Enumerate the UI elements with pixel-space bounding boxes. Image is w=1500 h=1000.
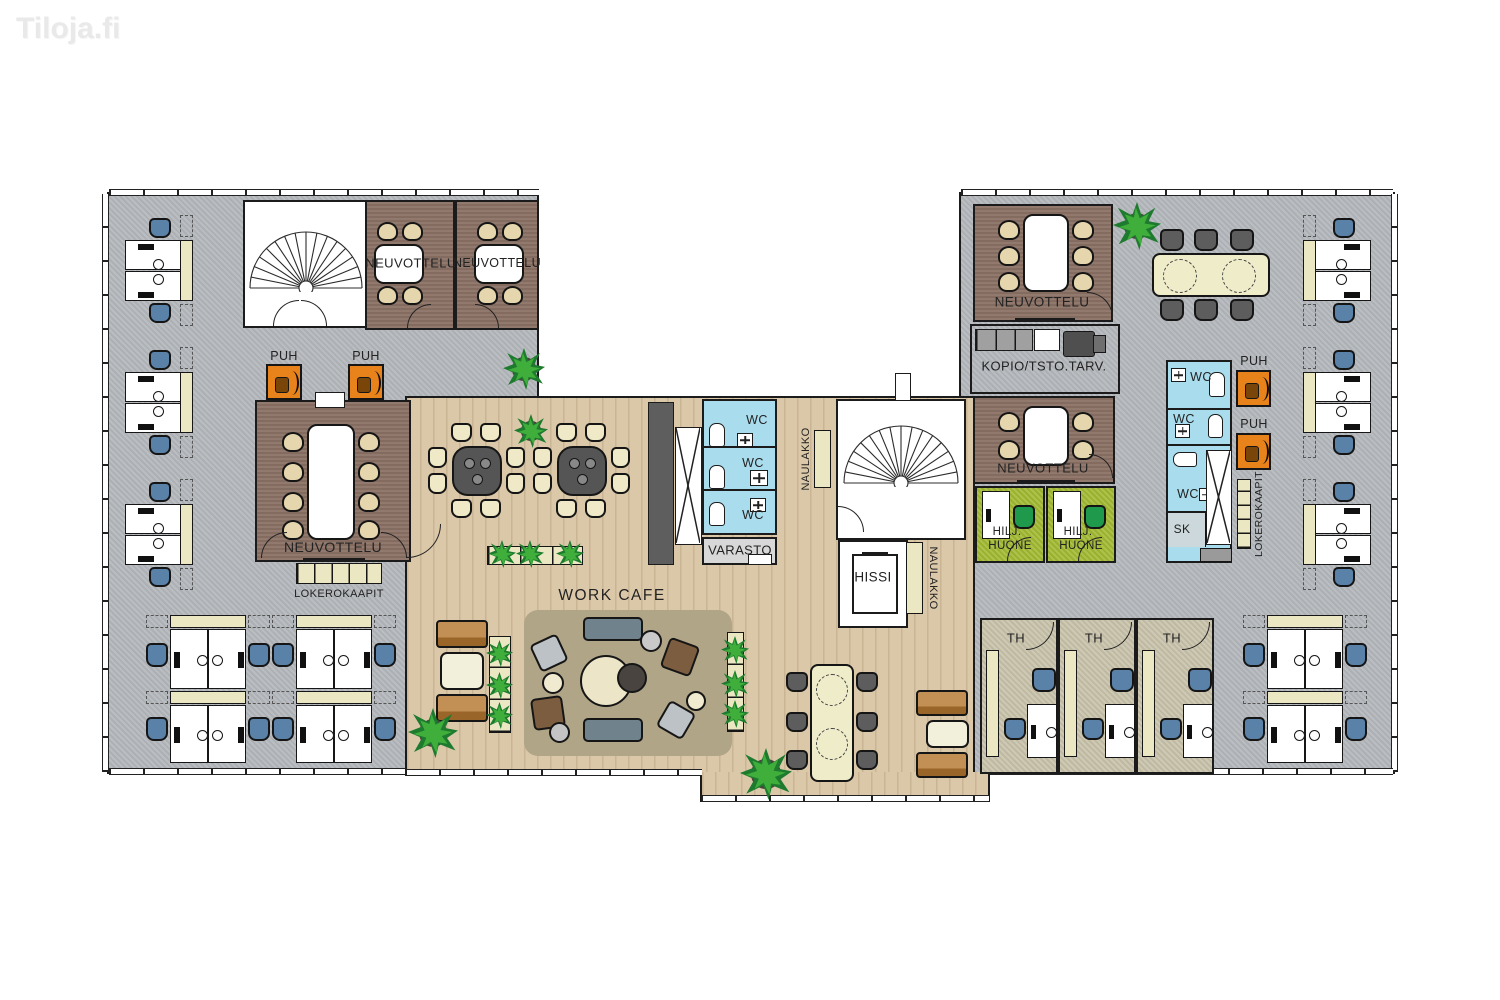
chair (533, 473, 552, 494)
monitor (300, 652, 306, 668)
chair (358, 432, 380, 452)
door-arc (1026, 622, 1054, 650)
ventilation-shaft (1206, 450, 1232, 545)
chair (1160, 299, 1184, 321)
monitor (238, 652, 244, 668)
reserved-slot (248, 691, 270, 704)
chair (402, 222, 423, 241)
copier (1063, 331, 1095, 357)
phone-booth (348, 364, 384, 400)
reserved-slot (1345, 615, 1367, 628)
chair (506, 473, 525, 494)
room-label-elevator: HISSI (854, 570, 891, 585)
desk-leg (197, 655, 208, 666)
desk-storage (170, 615, 246, 628)
desk (1267, 629, 1305, 689)
power-module (577, 474, 588, 485)
reserved-slot (146, 615, 168, 628)
side-table (549, 722, 570, 743)
booth-table (1255, 377, 1269, 401)
plant (556, 540, 584, 568)
monitor (1109, 725, 1114, 739)
chair (1333, 567, 1355, 587)
room-label-phone-booth: PUH (1240, 417, 1268, 431)
chair (358, 462, 380, 482)
chair (998, 440, 1020, 460)
chair (149, 303, 171, 323)
chair (374, 643, 396, 667)
monitor (1271, 727, 1277, 743)
cabinet (986, 650, 999, 757)
chair (402, 286, 423, 305)
chair (1160, 718, 1182, 740)
whiteboard (303, 558, 365, 561)
monitor (138, 292, 154, 298)
bench (1200, 548, 1232, 562)
chair (998, 272, 1020, 292)
elevator-door (862, 552, 888, 555)
chair (1004, 718, 1026, 740)
chair (1110, 668, 1134, 692)
monitor (138, 508, 154, 514)
desk (1027, 704, 1057, 758)
desk (296, 705, 334, 763)
shaft-x-mark (1207, 451, 1230, 543)
room-label-coat-rack: NAULAKKO (800, 427, 812, 490)
door-arc (1182, 622, 1210, 650)
desk-leg (1046, 727, 1057, 738)
chair (1082, 718, 1104, 740)
reserved-slot (1303, 479, 1316, 501)
booth-bench (436, 620, 488, 648)
monitor (174, 652, 180, 668)
power-module (585, 458, 596, 469)
desk (170, 705, 208, 763)
chair (1072, 272, 1094, 292)
reserved-slot (1303, 568, 1316, 590)
phone-booth (1236, 433, 1271, 470)
reserved-slot (180, 479, 193, 501)
door-arc (1104, 622, 1132, 650)
chair (1072, 246, 1094, 266)
desk-pair (1303, 482, 1385, 588)
side-table (686, 691, 706, 711)
chair (1333, 482, 1355, 502)
plant (721, 636, 749, 664)
room-label-meeting: NEUVOTTELU (997, 461, 1088, 476)
room-label-meeting: NEUVOTTELU (995, 295, 1090, 310)
desk-storage (1303, 240, 1316, 301)
room-label-th: TH (1163, 631, 1181, 646)
desk-storage (1303, 504, 1316, 565)
reserved-slot (180, 568, 193, 590)
reserved-slot (1303, 436, 1316, 458)
monitor (138, 244, 154, 250)
room-label-meeting: NEUVOTTELU (453, 256, 541, 270)
reserved-slot (180, 436, 193, 458)
floor-plan-canvas: Tiloja.fi NEUVOTTELU NEUVOTTELU (0, 0, 1500, 1000)
chair (506, 447, 525, 468)
chair (1194, 229, 1218, 251)
room-label-quiet: HILJ. (993, 526, 1022, 538)
chair (377, 222, 398, 241)
reserved-slot (248, 615, 270, 628)
desk-storage (180, 504, 193, 565)
room-label-lockers: LOKEROKAAPIT (1253, 471, 1265, 557)
door-arc (838, 506, 864, 532)
booth-table (1255, 440, 1269, 464)
door-arc (475, 304, 499, 328)
plant (486, 702, 513, 729)
room-label-storage: VARASTO (708, 543, 772, 558)
chair (502, 286, 523, 305)
monitor (1344, 292, 1360, 298)
reserved-slot (272, 691, 294, 704)
booth-bench (916, 752, 968, 778)
toilet (1173, 452, 1197, 467)
reserved-slot (1303, 215, 1316, 237)
chair (282, 432, 304, 452)
monitor (1335, 652, 1341, 668)
table-marking (816, 728, 848, 760)
reserved-slot (1243, 691, 1265, 704)
chair (1333, 218, 1355, 238)
desk-leg (1309, 655, 1320, 666)
desk-cluster (146, 615, 270, 763)
desk-leg (212, 730, 223, 741)
room-label-quiet: HILJ. (1064, 526, 1093, 538)
desk-leg (1202, 727, 1213, 738)
desk-leg (1336, 406, 1347, 417)
locker-cabinets (296, 563, 382, 584)
meeting-table (307, 424, 355, 540)
cabinet (1064, 650, 1077, 757)
room-label-wc: WC (742, 456, 764, 470)
booth-bench (916, 690, 968, 716)
desk-pair (125, 218, 207, 324)
reserved-slot (180, 347, 193, 369)
chair (1072, 412, 1094, 432)
power-module (569, 458, 580, 469)
reserved-slot (146, 691, 168, 704)
chair (477, 286, 498, 305)
desk-leg (1294, 730, 1305, 741)
partition-wall (1168, 444, 1230, 446)
wall-pass-box (315, 392, 345, 408)
cabinet (1034, 329, 1060, 351)
potted-plant (740, 748, 792, 800)
cafe-table (557, 446, 607, 496)
whiteboard (1017, 480, 1075, 483)
monitor (138, 376, 154, 382)
plant (721, 700, 749, 728)
desk-leg (212, 655, 223, 666)
desk-leg (153, 274, 164, 285)
partition-wall (704, 489, 775, 491)
side-table (640, 630, 662, 652)
room-label-phone-booth: PUH (1240, 354, 1268, 368)
chair (611, 447, 630, 468)
desk (1305, 705, 1343, 763)
door-arc (301, 300, 327, 326)
table-marking (1163, 259, 1197, 293)
monitor (300, 727, 306, 743)
door-arc (1089, 454, 1113, 478)
window-strip (109, 189, 539, 196)
desk-pair (125, 482, 207, 588)
desk (296, 629, 334, 689)
plant (486, 640, 513, 667)
room-label-wc: WC (742, 508, 764, 522)
potted-plant (514, 414, 548, 448)
cabinet-row (975, 329, 1033, 351)
coat-rack-cabinet (814, 430, 831, 488)
window-strip (961, 189, 1393, 196)
toilet (1208, 414, 1223, 438)
booth-table (440, 652, 484, 690)
monitor (364, 727, 370, 743)
chair (248, 717, 270, 741)
chair (282, 462, 304, 482)
room-label-coat-rack: NAULAKKO (927, 546, 939, 609)
door-arc (273, 300, 299, 326)
monitor (138, 424, 154, 430)
chair (998, 220, 1020, 240)
chair (146, 643, 168, 667)
chair (1188, 668, 1212, 692)
coat-rack-cabinet (906, 542, 923, 614)
booth-table (285, 371, 299, 395)
chair (428, 473, 447, 494)
chair (149, 435, 171, 455)
monitor (986, 509, 991, 522)
reserved-slot (1345, 691, 1367, 704)
wall-pass-box (895, 373, 911, 401)
chair (477, 222, 498, 241)
reserved-slot (272, 615, 294, 628)
room-label-wc: WC (1177, 487, 1199, 501)
desk-cluster (1243, 615, 1367, 763)
whiteboard (1015, 318, 1075, 321)
plant (516, 540, 544, 568)
monitor (364, 652, 370, 668)
coffee-table (617, 663, 647, 693)
desk (334, 629, 372, 689)
service-shaft (648, 402, 674, 565)
booth-table (367, 371, 381, 395)
chair (556, 423, 577, 442)
room-label-wc: WC (1173, 412, 1195, 426)
desk-leg (197, 730, 208, 741)
table-marking (816, 674, 848, 706)
desk-leg (338, 730, 349, 741)
sofa (583, 617, 643, 641)
room-label-quiet: HUONE (1059, 540, 1103, 552)
door-arc (1087, 292, 1113, 318)
monitor (1344, 244, 1360, 250)
monitor (238, 727, 244, 743)
chair (1032, 668, 1056, 692)
desk-pair (1303, 350, 1385, 456)
reserved-slot (1303, 304, 1316, 326)
chair (585, 423, 606, 442)
desk-leg (1294, 655, 1305, 666)
desk-leg (153, 259, 164, 270)
room-label-copy: KOPIO/TSTO.TARV. (981, 359, 1106, 374)
desk-leg (1336, 523, 1347, 534)
room-label-meeting: NEUVOTTELU (365, 256, 456, 271)
desk-leg (1124, 727, 1135, 738)
chair (585, 499, 606, 518)
sink (750, 470, 768, 486)
desk (170, 629, 208, 689)
side-table (542, 672, 564, 694)
monitor (1335, 727, 1341, 743)
room-label-meeting: NEUVOTTELU (284, 539, 382, 555)
chair (451, 423, 472, 442)
sofa (583, 718, 643, 742)
standing-table (810, 664, 854, 782)
chair (149, 567, 171, 587)
sink (1175, 424, 1190, 438)
stair-core (836, 399, 966, 540)
area-label-work-cafe: WORK CAFE (558, 587, 665, 605)
door-arc (407, 304, 431, 328)
toilet (709, 423, 725, 447)
locker-cabinets (1237, 479, 1251, 549)
desk-storage (180, 372, 193, 433)
chair (786, 672, 808, 692)
toilet (709, 465, 725, 489)
desk-storage (180, 240, 193, 301)
armchair (659, 636, 700, 677)
desk-leg (1336, 274, 1347, 285)
desk-leg (1336, 538, 1347, 549)
spiral-staircase (840, 403, 962, 487)
chair (1160, 229, 1184, 251)
desk-leg (1336, 391, 1347, 402)
chair (856, 672, 878, 692)
plant (486, 672, 513, 699)
phone-booth (266, 364, 302, 400)
desk-storage (296, 691, 372, 704)
cafe-table (452, 446, 502, 496)
chair (149, 350, 171, 370)
room-label-lockers: LOKEROKAAPIT (294, 588, 384, 600)
chair (1072, 220, 1094, 240)
chair (1333, 435, 1355, 455)
desk-leg (1309, 730, 1320, 741)
desk-leg (1336, 259, 1347, 270)
window-strip (109, 768, 405, 775)
monitor (1344, 424, 1360, 430)
chair (1194, 299, 1218, 321)
room-label-phone-booth: PUH (270, 349, 298, 363)
room-label-th: TH (1085, 631, 1103, 646)
potted-plant (408, 708, 458, 758)
desk-leg (153, 406, 164, 417)
reserved-slot (180, 304, 193, 326)
stairwell-room (243, 200, 367, 328)
desk (208, 705, 246, 763)
desk (208, 629, 246, 689)
chair (998, 246, 1020, 266)
desk-storage (1267, 691, 1343, 704)
room-label-phone-booth: PUH (352, 349, 380, 363)
reserved-slot (1303, 347, 1316, 369)
window-strip (1391, 194, 1398, 772)
toilet (709, 502, 725, 526)
sink (737, 433, 753, 447)
desk (1183, 704, 1213, 758)
monitor (1271, 652, 1277, 668)
chair (377, 286, 398, 305)
chair (556, 499, 577, 518)
monitor (138, 556, 154, 562)
booth-table (926, 720, 969, 748)
power-module (480, 458, 491, 469)
room-label-wc: WC (746, 413, 768, 427)
reserved-slot (1243, 615, 1265, 628)
cafe-table-group (428, 423, 524, 519)
cabinet (1142, 650, 1155, 757)
chair (272, 717, 294, 741)
desk-leg (323, 655, 334, 666)
chair (282, 492, 304, 512)
chair (374, 717, 396, 741)
door-arc (381, 532, 407, 558)
reserved-slot (374, 615, 396, 628)
chair (502, 222, 523, 241)
room-label-cleaning: SK (1174, 522, 1191, 536)
desk-storage (296, 615, 372, 628)
chair (611, 473, 630, 494)
reserved-slot (374, 691, 396, 704)
site-watermark: Tiloja.fi (16, 12, 120, 46)
chair (1333, 303, 1355, 323)
plant (721, 670, 749, 698)
plant (488, 540, 516, 568)
power-module (464, 458, 475, 469)
chair (1345, 643, 1367, 667)
chair (1345, 717, 1367, 741)
ventilation-shaft (675, 427, 702, 545)
chair (272, 643, 294, 667)
chair (998, 412, 1020, 432)
meeting-room-large (255, 400, 411, 562)
sink (1171, 368, 1186, 382)
table-marking (1222, 259, 1256, 293)
chair (451, 499, 472, 518)
desk-storage (170, 691, 246, 704)
monitor (174, 727, 180, 743)
chair (533, 447, 552, 468)
desk-pair (1303, 218, 1385, 324)
copier-tray (1093, 335, 1106, 353)
chair (786, 712, 808, 732)
window-strip (405, 769, 702, 776)
power-module (472, 474, 483, 485)
chair (358, 520, 380, 540)
desk (1105, 704, 1135, 758)
chair (1333, 350, 1355, 370)
desk (1305, 629, 1343, 689)
window-strip (102, 194, 109, 772)
monitor (1344, 376, 1360, 382)
room-label-th: TH (1007, 631, 1025, 646)
meeting-table (1023, 406, 1069, 466)
partition-wall (1168, 408, 1230, 410)
